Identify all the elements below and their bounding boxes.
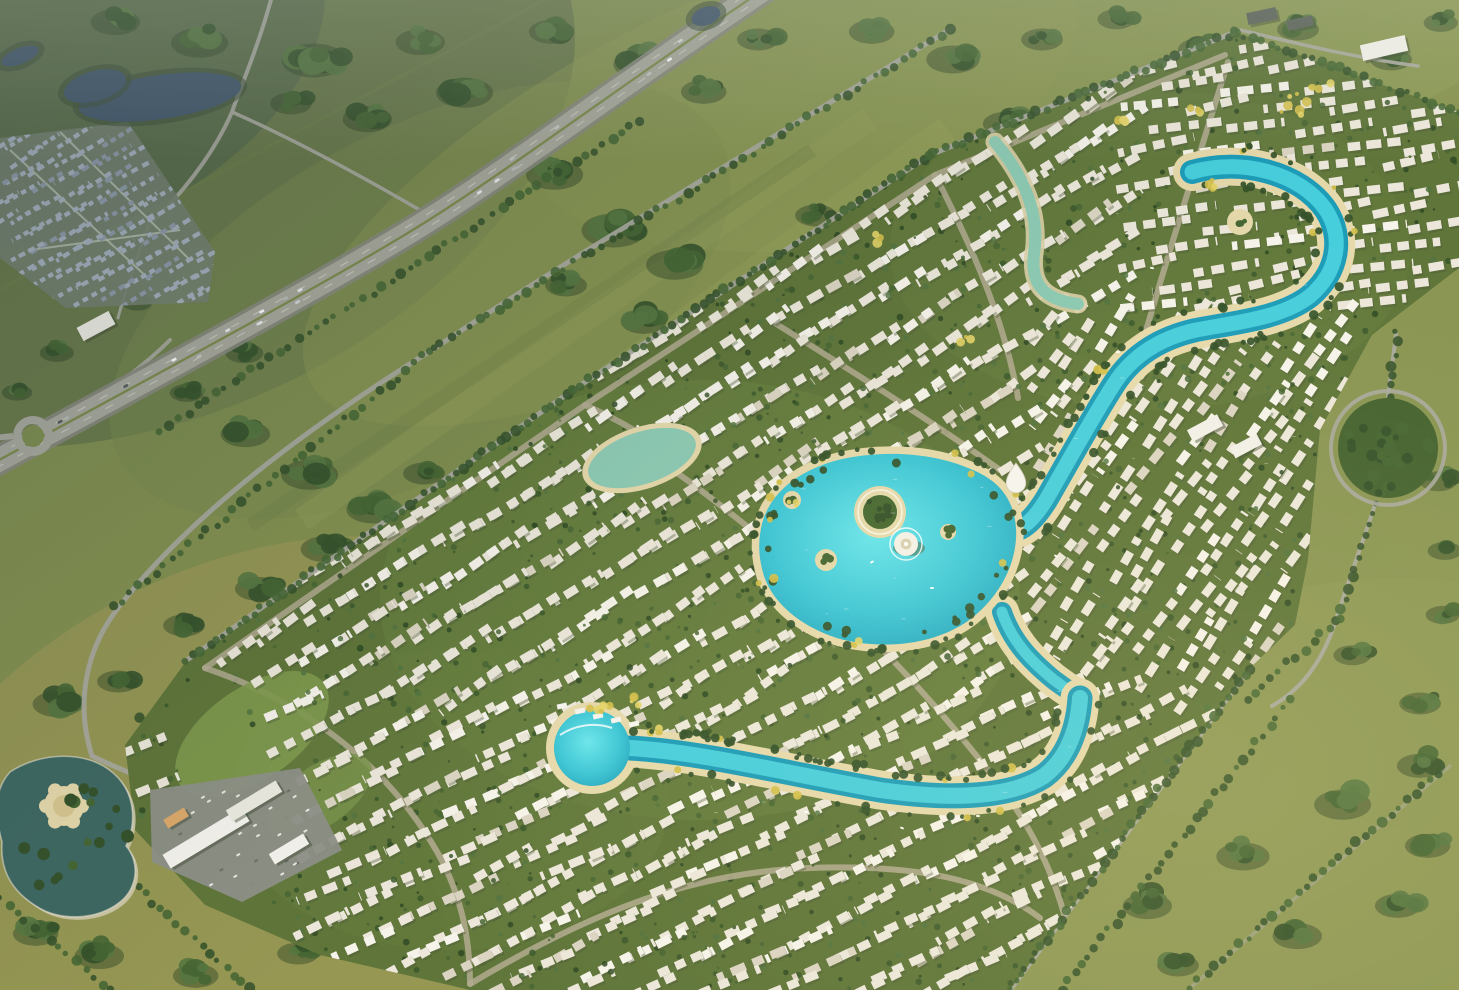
lighting bbox=[0, 0, 1459, 990]
aerial-render-root bbox=[0, 0, 1459, 990]
aerial-photo bbox=[0, 0, 1459, 990]
